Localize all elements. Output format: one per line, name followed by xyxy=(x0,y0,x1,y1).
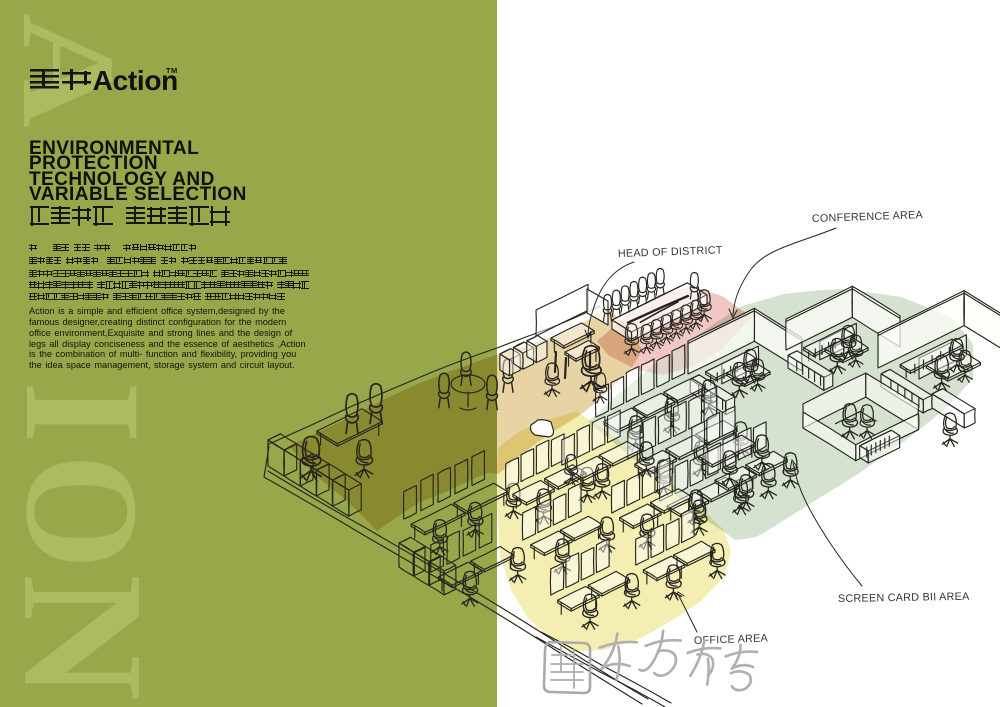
svg-text:SCREEN CARD BII AREA: SCREEN CARD BII AREA xyxy=(838,591,970,605)
svg-text:CONFERENCE AREA: CONFERENCE AREA xyxy=(812,209,924,225)
svg-text:HEAD OF DISTRICT: HEAD OF DISTRICT xyxy=(618,244,723,260)
